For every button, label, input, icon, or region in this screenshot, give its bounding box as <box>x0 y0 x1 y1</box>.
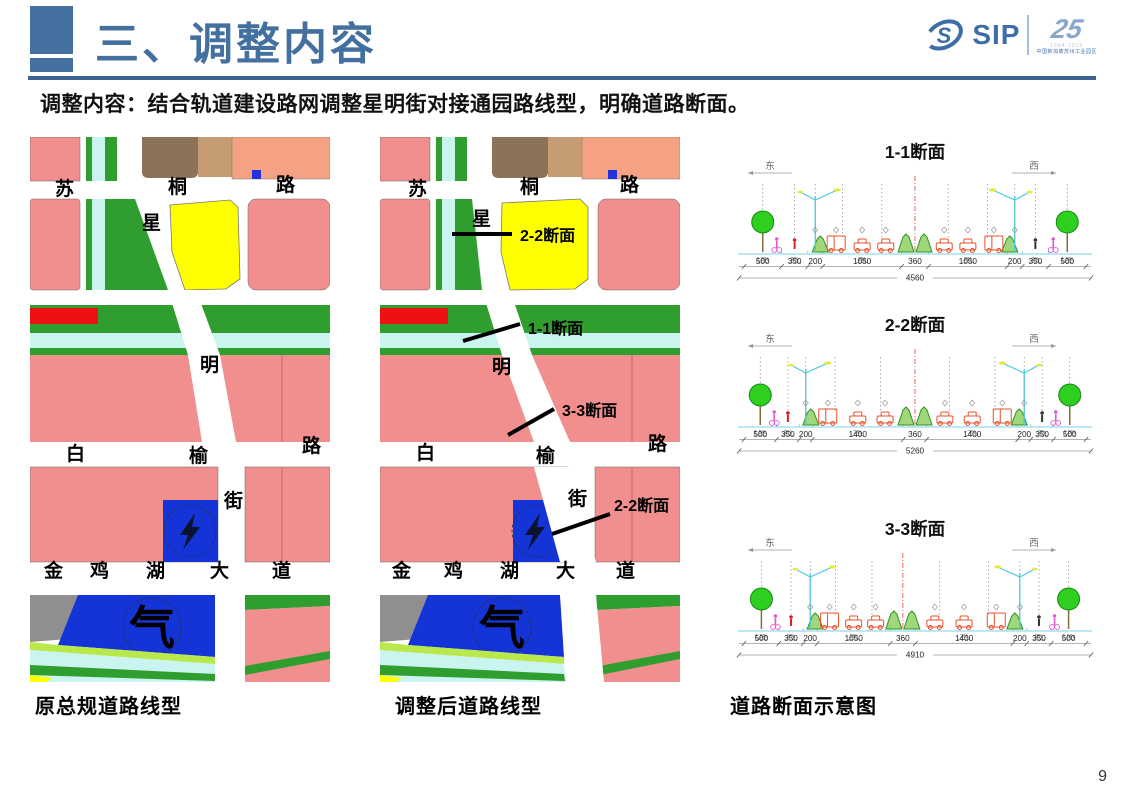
road-label-jie: 街 <box>223 489 243 512</box>
road-label-jie: 街 <box>567 487 587 510</box>
annotation-2-2-top: 2-2断面 <box>520 226 575 245</box>
road-label-jin: 金 <box>43 559 64 582</box>
annotation-3-3: 3-3断面 <box>562 401 617 420</box>
dim-value: 200 <box>1013 634 1027 643</box>
cross-section-block-3: 3-3断面东西1.5%2%2%2%2%1.5%50035020010503601… <box>712 517 1112 689</box>
road-label-tong: 桐 <box>168 175 187 198</box>
dim-value: 200 <box>803 634 817 643</box>
dim-value: 360 <box>908 430 922 439</box>
road-label-lu: 路 <box>276 173 296 196</box>
caption-sections: 道路断面示意图 <box>730 690 877 719</box>
cross-section-block-1: 1-1断面东西1.5%2%2%2%2%1.5%50035020010503601… <box>712 140 1112 312</box>
road-label-bai: 白 <box>66 442 85 465</box>
svg-text:S: S <box>937 23 952 48</box>
map-original-plan: 苏 桐 路 星 明 白 榆 路 街 金 鸡 湖 大 道 气 <box>30 137 330 682</box>
map-adjusted-drawing: 苏 桐 路 星 明 白 榆 路 街 金 鸡 湖 大 道 气 2-2断面 1-1断… <box>380 137 680 682</box>
road-label-jin: 金 <box>391 559 412 582</box>
title-accent-square <box>30 6 73 54</box>
dim-value: 500 <box>1060 257 1074 266</box>
total-dim-value: 4910 <box>906 651 925 660</box>
road-label-ji: 鸡 <box>443 559 463 582</box>
cross-section-block-2: 2-2断面东西1.5%2%2%2%2%1.5%50035020014003601… <box>712 313 1112 485</box>
road-label-tong: 桐 <box>520 175 539 198</box>
road-label-dao: 道 <box>272 559 291 582</box>
dim-value: 350 <box>781 430 795 439</box>
road-label-lu2: 路 <box>648 432 668 455</box>
east-marker: 东 <box>765 333 775 345</box>
cross-sections-panel: 1-1断面东西1.5%2%2%2%2%1.5%50035020010503601… <box>712 137 1112 693</box>
logo-brand: SIP <box>972 19 1020 51</box>
dim-value: 200 <box>1017 430 1031 439</box>
dim-value: 1050 <box>845 634 864 643</box>
caption-original: 原总规道路线型 <box>35 690 182 719</box>
dim-value: 350 <box>784 634 798 643</box>
intro-text: 调整内容：结合轨道建设路网调整星明街对接通园路线型，明确道路断面。 <box>40 88 750 118</box>
dim-value: 200 <box>799 430 813 439</box>
road-label-hu: 湖 <box>500 560 519 582</box>
logo-tagline: 中国新加坡苏州工业园区 <box>1036 50 1097 55</box>
map-original-drawing: 苏 桐 路 星 明 白 榆 路 街 金 鸡 湖 大 道 气 <box>30 137 330 682</box>
road-label-ming: 明 <box>200 354 219 376</box>
dim-value: 1400 <box>963 430 982 439</box>
east-marker: 东 <box>765 160 775 172</box>
cross-section-title: 3-3断面 <box>885 519 945 539</box>
gas-station-label: 气 <box>129 602 175 654</box>
annotation-1-1: 1-1断面 <box>528 319 583 338</box>
dim-value: 500 <box>1063 430 1077 439</box>
road-label-xing: 星 <box>472 208 491 230</box>
road-label-yu: 榆 <box>536 444 556 467</box>
total-dim-value: 5260 <box>906 447 925 456</box>
dim-value: 1050 <box>959 257 978 266</box>
sip-swoosh-icon: S <box>923 14 965 56</box>
road-label-su: 苏 <box>408 177 427 200</box>
east-marker: 东 <box>765 537 775 549</box>
road-label-su: 苏 <box>55 177 74 200</box>
dim-value: 500 <box>1062 634 1076 643</box>
page-title: 三、调整内容 <box>95 8 377 72</box>
map-adjusted-plan: 苏 桐 路 星 明 白 榆 路 街 金 鸡 湖 大 道 气 2-2断面 1-1断… <box>380 137 680 682</box>
dim-value: 350 <box>1029 257 1043 266</box>
sip-logo: S SIP 25 1994-2019 中国新加坡苏州工业园区 <box>923 14 1097 56</box>
dim-value: 200 <box>808 257 822 266</box>
dim-value: 1400 <box>955 634 974 643</box>
page-number: 9 <box>1098 768 1107 786</box>
logo-divider <box>1027 15 1029 55</box>
dim-value: 350 <box>1032 634 1046 643</box>
road-label-da: 大 <box>210 559 229 582</box>
west-marker: 西 <box>1029 334 1039 345</box>
cross-section-drawing-1: 1-1断面东西1.5%2%2%2%2%1.5%50035020010503601… <box>712 140 1112 312</box>
road-label-ji: 鸡 <box>89 559 109 582</box>
cross-section-drawing-3: 3-3断面东西1.5%2%2%2%2%1.5%50035020010503601… <box>712 517 1112 689</box>
dim-value: 200 <box>1008 257 1022 266</box>
caption-adjusted: 调整后道路线型 <box>395 690 542 719</box>
road-label-da: 大 <box>556 559 575 582</box>
gas-station-label: 气 <box>479 602 525 654</box>
dim-value: 500 <box>756 257 770 266</box>
header-divider <box>28 76 1096 80</box>
dim-value: 500 <box>755 634 769 643</box>
cross-section-title: 2-2断面 <box>885 315 945 335</box>
dim-value: 500 <box>753 430 767 439</box>
dim-value: 350 <box>1035 430 1049 439</box>
cross-section-drawing-2: 2-2断面东西1.5%2%2%2%2%1.5%50035020014003601… <box>712 313 1112 485</box>
dim-value: 360 <box>896 634 910 643</box>
road-label-ming: 明 <box>492 356 511 378</box>
logo-anniversary-years: 1994-2019 <box>1050 44 1083 49</box>
road-label-lu: 路 <box>620 173 640 196</box>
dim-value: 1050 <box>853 257 872 266</box>
dim-value: 350 <box>788 257 802 266</box>
west-marker: 西 <box>1029 161 1039 172</box>
road-label-bai: 白 <box>416 441 435 464</box>
logo-anniversary-number: 25 <box>1049 16 1085 43</box>
road-label-xing: 星 <box>142 212 161 234</box>
cross-section-title: 1-1断面 <box>885 142 945 162</box>
dim-value: 1400 <box>849 430 868 439</box>
logo-anniversary: 25 1994-2019 中国新加坡苏州工业园区 <box>1036 16 1097 55</box>
title-accent-bar <box>30 58 73 72</box>
road-label-lu2: 路 <box>302 434 322 457</box>
road-label-yu: 榆 <box>189 444 209 467</box>
road-label-hu: 湖 <box>146 560 165 582</box>
total-dim-value: 4560 <box>906 274 925 283</box>
dim-value: 360 <box>908 257 922 266</box>
annotation-2-2-bottom: 2-2断面 <box>614 496 669 515</box>
west-marker: 西 <box>1029 538 1039 549</box>
road-label-dao: 道 <box>616 559 635 582</box>
